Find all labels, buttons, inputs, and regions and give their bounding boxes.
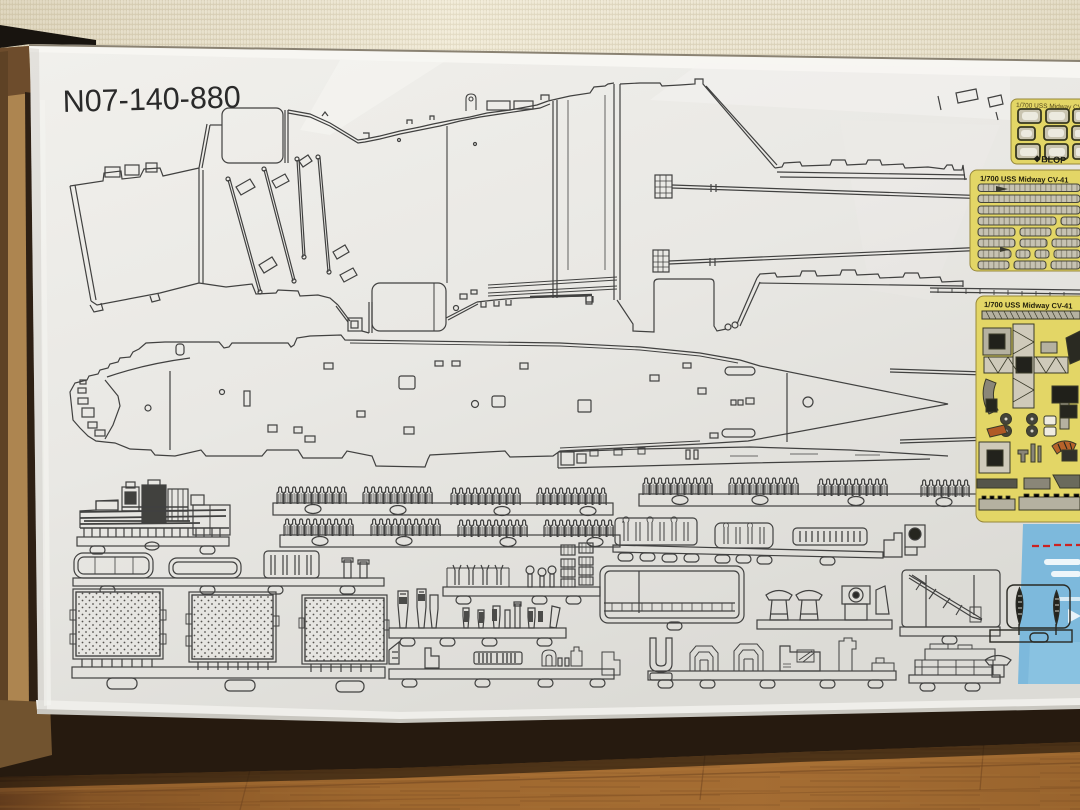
svg-text:❖BLOP: ❖BLOP <box>1033 154 1066 165</box>
svg-text:N07-140-880: N07-140-880 <box>62 79 241 119</box>
svg-text:1/700 USS Midway CV-41: 1/700 USS Midway CV-41 <box>980 174 1069 185</box>
svg-text:1/700 USS Midway CV-41: 1/700 USS Midway CV-41 <box>984 300 1073 311</box>
